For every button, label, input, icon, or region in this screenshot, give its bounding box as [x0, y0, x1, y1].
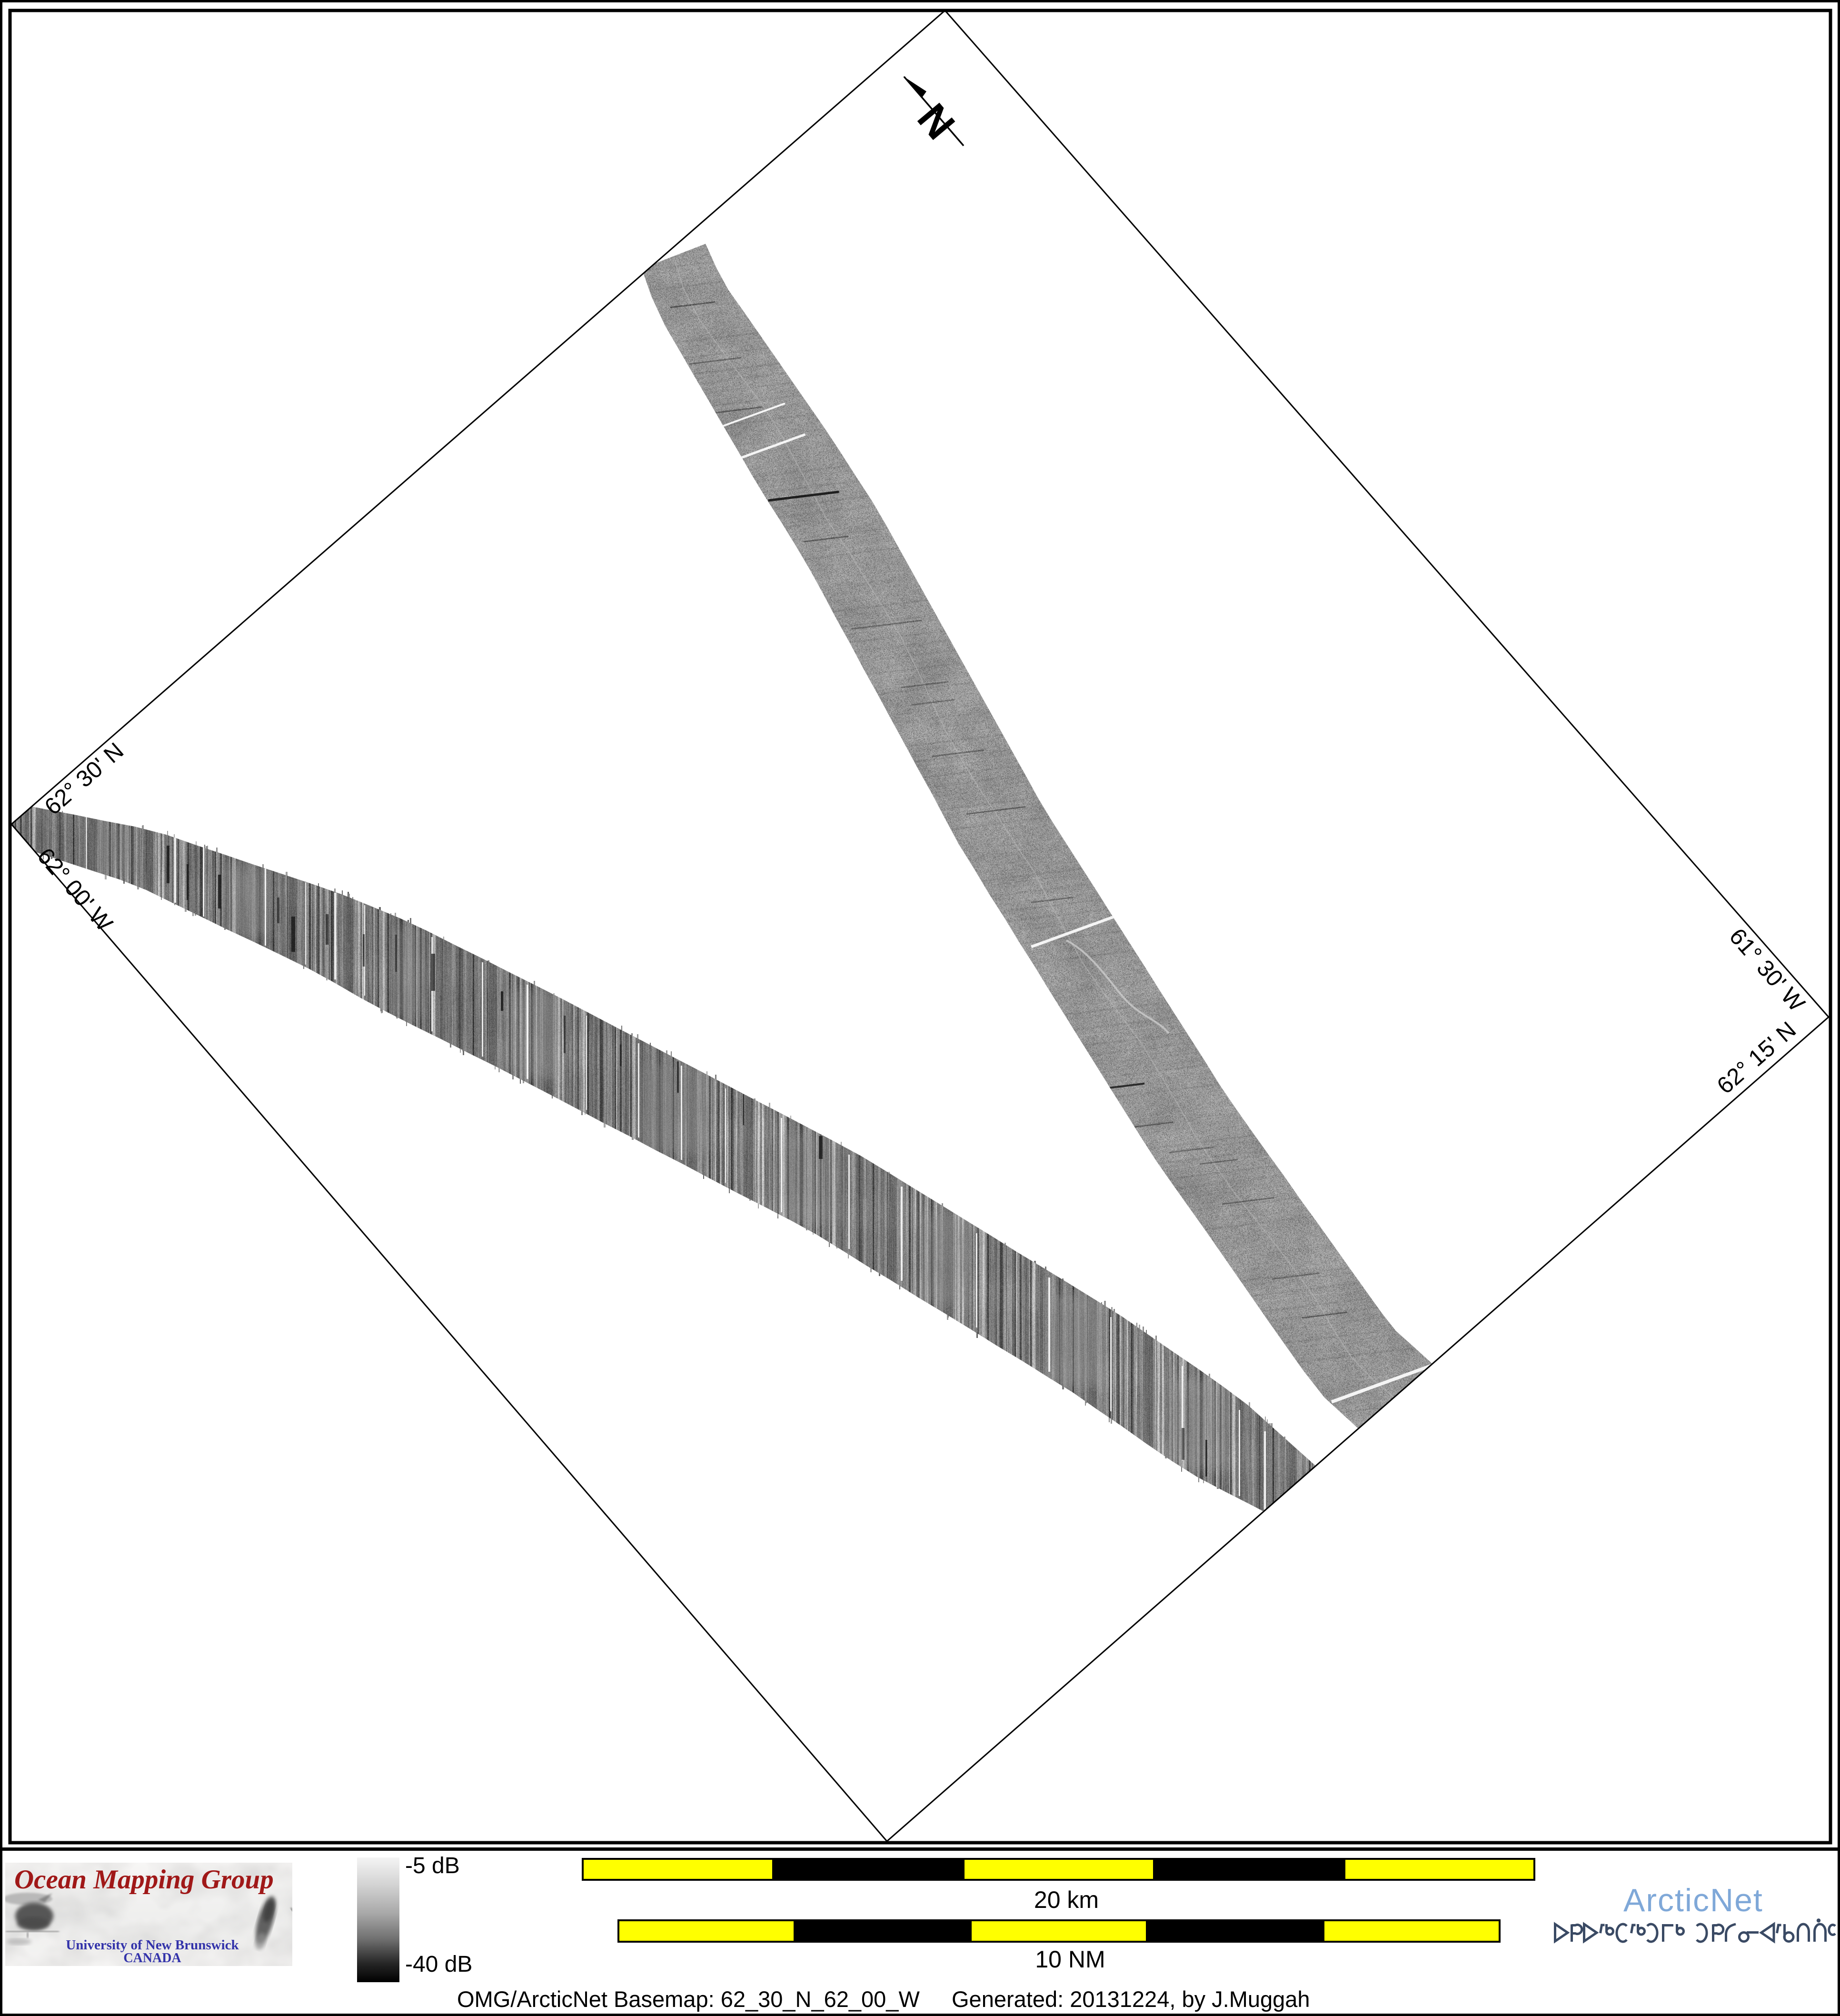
svg-text:10 NM: 10 NM	[1035, 1946, 1105, 1973]
svg-text:CANADA: CANADA	[123, 1951, 181, 1966]
svg-text:OMG/ArcticNet Basemap: 62_30_N: OMG/ArcticNet Basemap: 62_30_N_62_00_W	[457, 1986, 920, 2012]
svg-text:-40 dB: -40 dB	[405, 1952, 472, 1977]
svg-text:-5 dB: -5 dB	[405, 1853, 460, 1878]
svg-text:Ocean Mapping Group: Ocean Mapping Group	[14, 1865, 274, 1895]
svg-text:Generated: 20131224, by J.Mugg: Generated: 20131224, by J.Muggah	[952, 1986, 1310, 2012]
svg-text:20 km: 20 km	[1034, 1886, 1099, 1913]
svg-text:ArcticNet: ArcticNet	[1623, 1882, 1763, 1918]
